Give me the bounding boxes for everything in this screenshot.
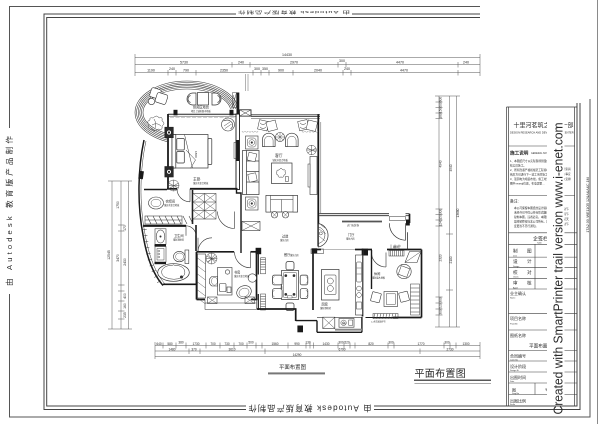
svg-text:核: 核 xyxy=(527,280,532,287)
svg-text:Dwg.No: Dwg.No xyxy=(512,393,520,395)
svg-text:1560: 1560 xyxy=(271,342,278,346)
svg-text:客厅: 客厅 xyxy=(275,153,283,158)
svg-text:240: 240 xyxy=(169,67,175,71)
svg-text:书房: 书房 xyxy=(234,270,240,275)
svg-text:最终解释权归本公司所有。如有: 最终解释权归本公司所有。如有 xyxy=(514,220,552,224)
svg-text:出图时间: 出图时间 xyxy=(510,374,526,380)
svg-text:1800: 1800 xyxy=(194,151,198,158)
svg-text:图纸名称: 图纸名称 xyxy=(510,332,526,338)
svg-text:4940: 4940 xyxy=(449,164,453,171)
svg-text:出图比例: 出图比例 xyxy=(510,398,526,404)
svg-text:设计阶段: 设计阶段 xyxy=(510,363,526,369)
svg-text:审: 审 xyxy=(513,280,518,287)
svg-text:240: 240 xyxy=(238,61,244,65)
svg-text:2、所有隐蔽严格按规范工程验收合: 2、所有隐蔽严格按规范工程验收合 xyxy=(510,168,552,172)
svg-text:2730: 2730 xyxy=(446,347,453,351)
svg-text:Design: Design xyxy=(513,266,519,268)
svg-text:4470: 4470 xyxy=(400,69,408,73)
svg-text:300: 300 xyxy=(438,297,442,303)
svg-text:235: 235 xyxy=(123,312,127,318)
svg-text:过门石装饰: 过门石装饰 xyxy=(347,223,360,227)
svg-text:700: 700 xyxy=(238,342,244,346)
svg-text:790: 790 xyxy=(183,69,189,73)
svg-text:2320: 2320 xyxy=(438,254,442,261)
svg-text:600: 600 xyxy=(438,97,442,103)
svg-text:Created with SmartPrinter trai: Created with SmartPrinter trail version … xyxy=(550,123,565,415)
svg-text:300: 300 xyxy=(438,309,442,315)
svg-text:过道: 过道 xyxy=(282,234,289,239)
svg-text:1750: 1750 xyxy=(116,201,120,209)
svg-text:1190: 1190 xyxy=(147,69,155,73)
svg-text:变更恕不另行通知。: 变更恕不另行通知。 xyxy=(514,224,538,228)
svg-text:复制本图，违者必究。本图纸的: 复制本图，违者必究。本图纸的 xyxy=(514,215,552,219)
svg-text:520: 520 xyxy=(344,341,350,345)
svg-text:主卧: 主卧 xyxy=(193,177,201,182)
svg-text:13680: 13680 xyxy=(456,208,460,217)
svg-text:厨房: 厨房 xyxy=(322,302,328,307)
svg-text:平面布置图: 平面布置图 xyxy=(279,363,306,371)
svg-text:150: 150 xyxy=(438,108,442,114)
svg-text:300: 300 xyxy=(388,341,394,345)
svg-text:衣帽间: 衣帽间 xyxy=(166,199,176,204)
svg-text:580: 580 xyxy=(167,342,173,346)
svg-text:对: 对 xyxy=(527,269,532,275)
svg-text:5730: 5730 xyxy=(180,61,188,65)
svg-text:300: 300 xyxy=(254,67,260,71)
svg-text:1TA2.00 /WE11O5 12&A&A&C.1M: 1TA2.00 /WE11O5 12&A&A&C.1M xyxy=(586,177,590,232)
svg-text:500: 500 xyxy=(248,341,254,345)
svg-text:180: 180 xyxy=(438,113,442,119)
svg-text:休闲区地台: 休闲区地台 xyxy=(193,105,209,110)
svg-text:合同编号: 合同编号 xyxy=(510,353,526,359)
svg-text:1480: 1480 xyxy=(168,347,175,351)
svg-text:3470: 3470 xyxy=(116,254,120,262)
svg-text:520: 520 xyxy=(438,303,442,309)
svg-text:Scale: Scale xyxy=(510,404,516,406)
svg-text:卫生间: 卫生间 xyxy=(174,233,184,238)
svg-text:企签栏: 企签栏 xyxy=(533,236,548,243)
svg-text:格后方可进行下一道工序的施工；: 格后方可进行下一道工序的施工； xyxy=(510,173,550,177)
svg-text:300: 300 xyxy=(339,59,345,63)
svg-text:400: 400 xyxy=(123,293,127,299)
svg-text:300: 300 xyxy=(338,341,344,345)
svg-text:Check: Check xyxy=(513,277,519,279)
svg-text:1770: 1770 xyxy=(417,342,424,346)
svg-text:本公司保留本图纸的设计版权，: 本公司保留本图纸的设计版权， xyxy=(514,206,552,210)
svg-text:14430: 14430 xyxy=(282,53,292,57)
svg-text:Design.St: Design.St xyxy=(510,369,519,372)
svg-text:1240: 1240 xyxy=(438,219,442,226)
svg-text:350: 350 xyxy=(262,67,268,71)
svg-text:1300: 1300 xyxy=(462,342,469,346)
svg-text:820: 820 xyxy=(368,342,374,346)
svg-text:300: 300 xyxy=(444,341,450,345)
svg-text:计: 计 xyxy=(527,258,532,265)
svg-text:图: 图 xyxy=(512,387,516,393)
svg-text:150: 150 xyxy=(438,214,442,220)
svg-text:由 Autodesk 教育版产品制作: 由 Autodesk 教育版产品制作 xyxy=(249,404,372,414)
svg-text:休闲: 休闲 xyxy=(374,271,380,276)
svg-text:2100: 2100 xyxy=(449,256,453,263)
svg-text:3610: 3610 xyxy=(228,347,235,351)
svg-text:项目名称: 项目名称 xyxy=(510,315,526,321)
svg-text:4940: 4940 xyxy=(438,160,442,167)
svg-text:380: 380 xyxy=(178,341,184,345)
svg-text:业主确认: 业主确认 xyxy=(510,290,526,296)
svg-text:图中телеф位置，布电需要…: 图中телеф位置，布电需要… xyxy=(510,182,545,186)
svg-text:700: 700 xyxy=(210,342,216,346)
svg-text:300: 300 xyxy=(438,209,442,215)
svg-text:240: 240 xyxy=(344,67,350,71)
svg-text:600: 600 xyxy=(438,102,442,108)
svg-text:2430: 2430 xyxy=(123,258,127,266)
svg-text:设: 设 xyxy=(513,258,518,265)
svg-text:备注:: 备注: xyxy=(510,199,519,204)
svg-text:未经许可不得以任何形式翻印或: 未经许可不得以任何形式翻印或 xyxy=(514,211,552,215)
svg-text:1400: 1400 xyxy=(280,284,283,290)
svg-text:核实后施工。: 核实后施工。 xyxy=(510,164,526,168)
svg-text:Dwn: Dwn xyxy=(513,255,517,257)
svg-text:2350: 2350 xyxy=(220,69,228,73)
svg-text:十里河茗筑之: 十里河茗筑之 xyxy=(514,121,550,129)
svg-text:Prod.Me: Prod.Me xyxy=(510,324,518,326)
svg-text:校: 校 xyxy=(513,269,518,276)
svg-text:900: 900 xyxy=(278,69,284,73)
svg-text:12545: 12545 xyxy=(107,250,111,260)
svg-text:640: 640 xyxy=(156,342,162,346)
svg-text:1、本图纸尺寸以实际现场测量放线: 1、本图纸尺寸以实际现场测量放线 xyxy=(510,159,552,163)
svg-text:Appd: Appd xyxy=(513,287,518,290)
svg-text:160: 160 xyxy=(123,303,127,309)
svg-text:240: 240 xyxy=(463,61,469,65)
svg-text:130: 130 xyxy=(305,341,311,345)
svg-text:施工说明: 施工说明 xyxy=(509,150,529,157)
svg-text:3、强弱电为暗装布线，施工时注意: 3、强弱电为暗装布线，施工时注意 xyxy=(510,177,552,181)
svg-text:1430: 1430 xyxy=(322,342,329,346)
svg-text:1730: 1730 xyxy=(192,342,199,346)
svg-text:370: 370 xyxy=(191,347,197,351)
svg-text:制: 制 xyxy=(513,248,518,255)
svg-text:730: 730 xyxy=(224,342,230,346)
svg-text:170: 170 xyxy=(123,225,127,231)
svg-text:4470: 4470 xyxy=(396,61,404,65)
svg-text:990: 990 xyxy=(294,342,300,346)
svg-text:14290: 14290 xyxy=(293,353,302,357)
svg-text:6790: 6790 xyxy=(338,347,345,351)
svg-text:门厅: 门厅 xyxy=(348,232,355,237)
svg-text:Contr.No: Contr.No xyxy=(510,358,519,361)
svg-text:平面布置图: 平面布置图 xyxy=(415,368,467,380)
svg-text:2970: 2970 xyxy=(290,61,298,65)
svg-text:Name: Name xyxy=(510,298,516,300)
svg-text:2040: 2040 xyxy=(314,69,322,73)
